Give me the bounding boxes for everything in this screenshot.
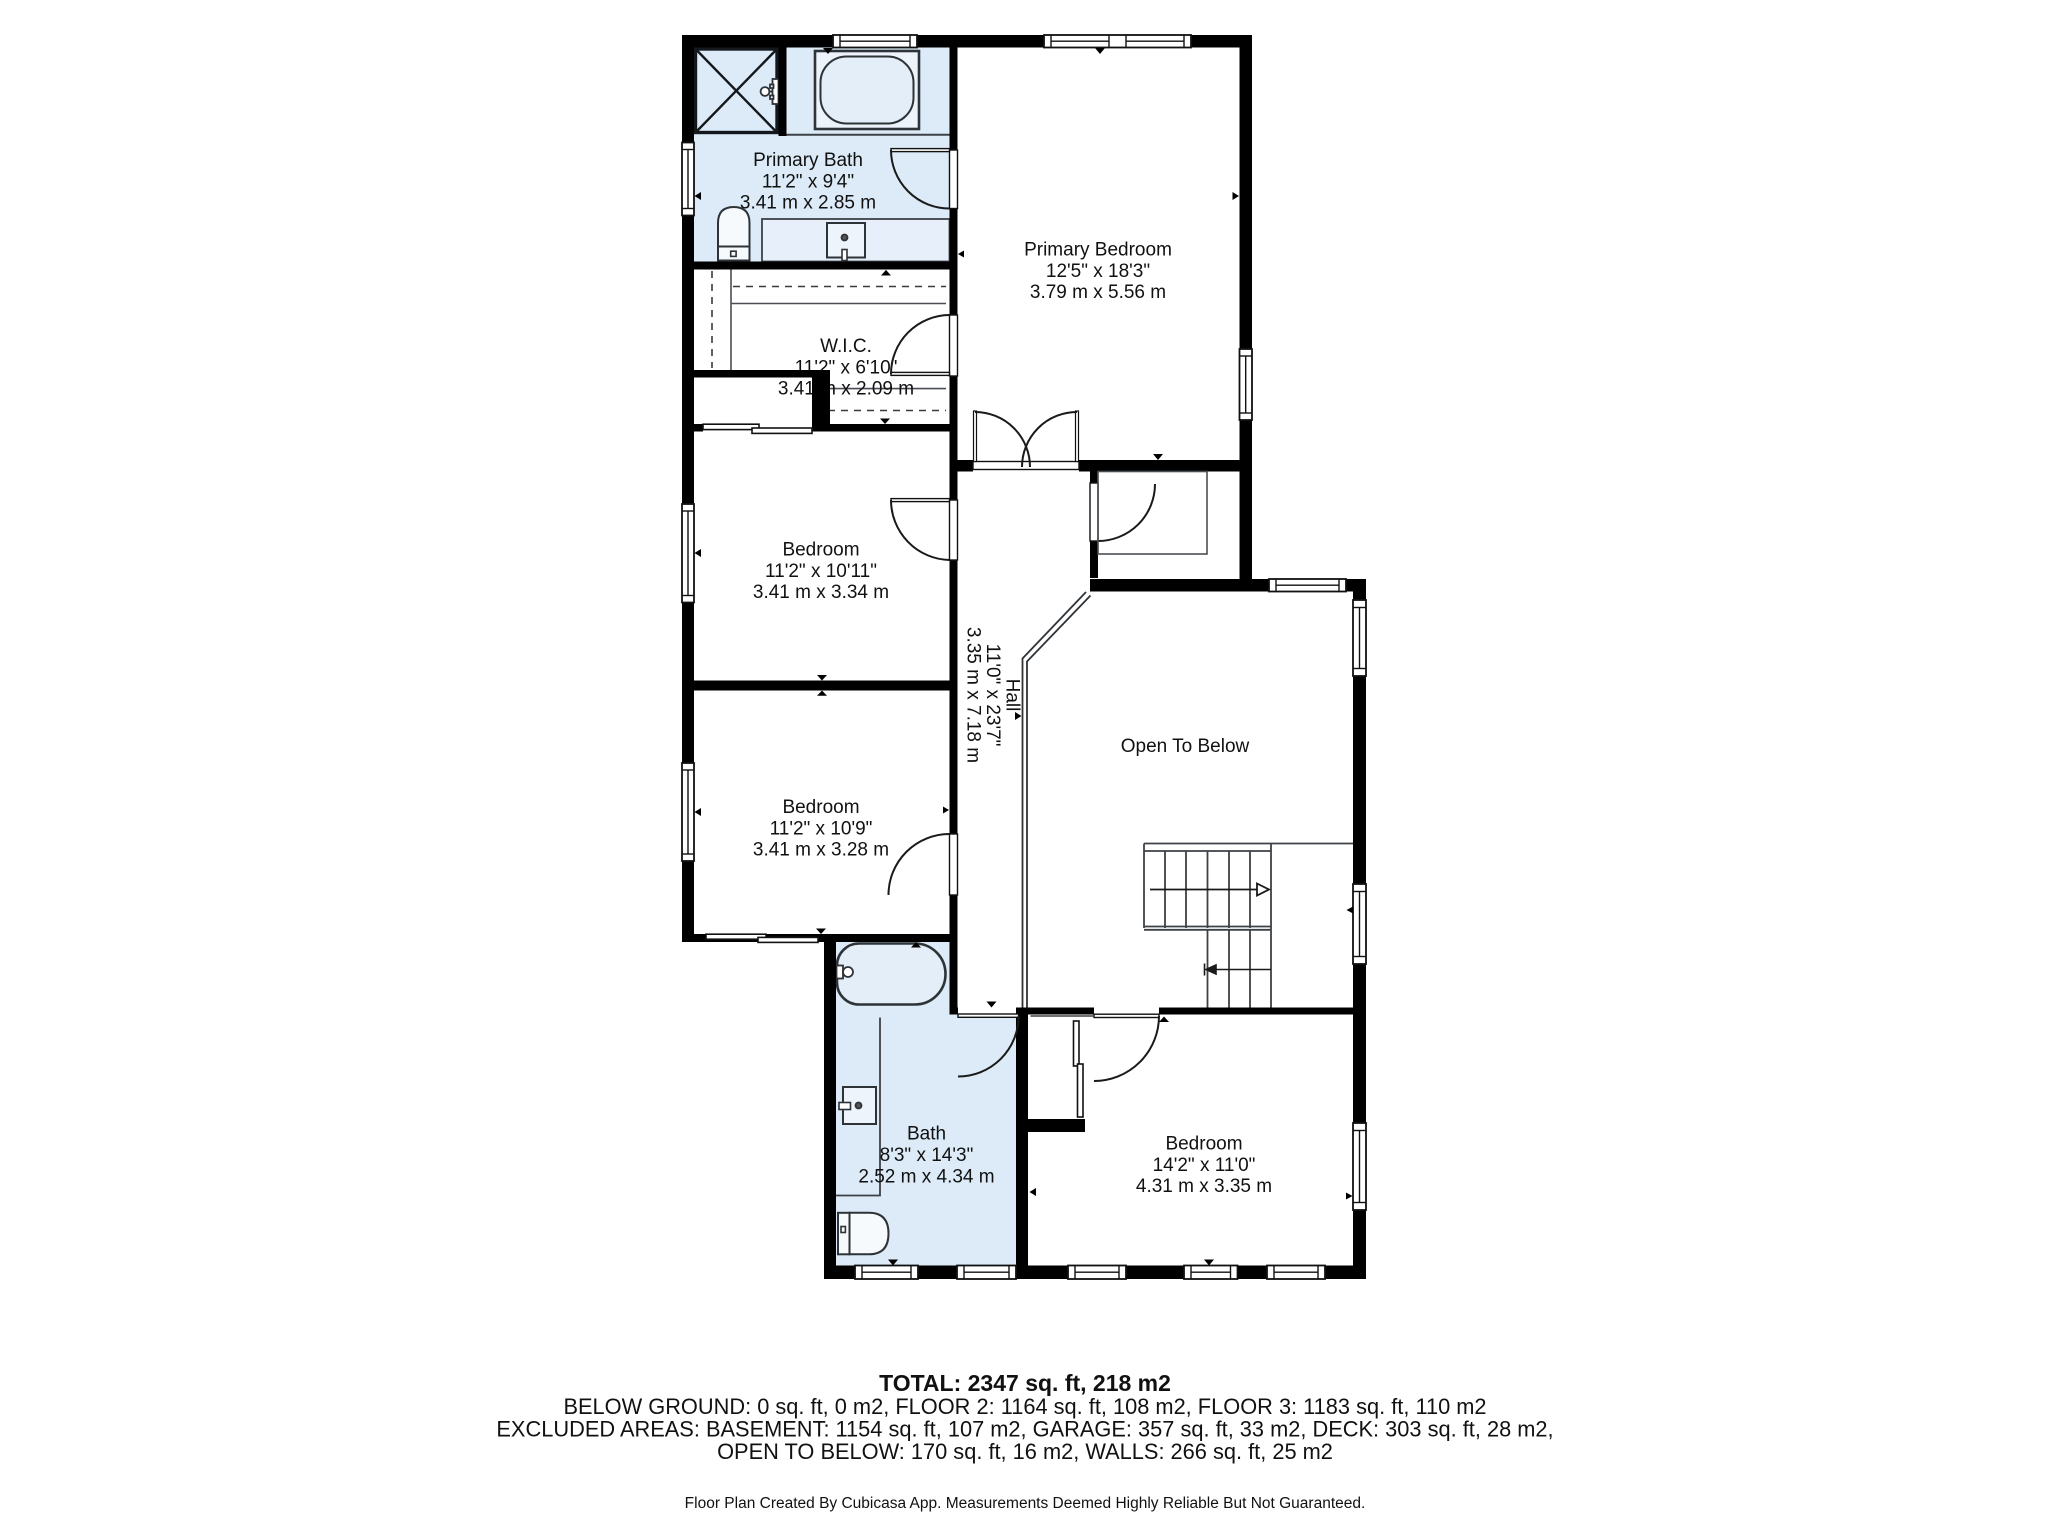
svg-text:OPEN TO BELOW: 170 sq. ft, 16: OPEN TO BELOW: 170 sq. ft, 16 m2, WALLS:… xyxy=(717,1439,1333,1464)
svg-text:Open To Below: Open To Below xyxy=(1121,736,1250,757)
svg-text:Hall: Hall xyxy=(1002,679,1023,712)
svg-text:14'2" x 11'0": 14'2" x 11'0" xyxy=(1153,1155,1256,1176)
svg-text:Bedroom: Bedroom xyxy=(782,540,859,561)
svg-text:W.I.C.: W.I.C. xyxy=(820,336,872,357)
svg-text:3.35 m x 7.18 m: 3.35 m x 7.18 m xyxy=(963,627,984,763)
svg-text:3.41 m x 2.09 m: 3.41 m x 2.09 m xyxy=(778,379,914,400)
svg-text:3.79 m x 5.56 m: 3.79 m x 5.56 m xyxy=(1030,282,1166,303)
svg-text:3.41 m x 2.85 m: 3.41 m x 2.85 m xyxy=(740,193,876,214)
svg-text:EXCLUDED AREAS: BASEMENT: 1154: EXCLUDED AREAS: BASEMENT: 1154 sq. ft, 1… xyxy=(496,1417,1553,1442)
svg-text:Primary Bedroom: Primary Bedroom xyxy=(1024,240,1172,261)
svg-text:TOTAL: 2347 sq. ft, 218 m2: TOTAL: 2347 sq. ft, 218 m2 xyxy=(879,1370,1171,1396)
svg-text:Bedroom: Bedroom xyxy=(1165,1134,1242,1155)
svg-text:11'2" x 9'4": 11'2" x 9'4" xyxy=(762,172,854,193)
svg-text:12'5" x 18'3": 12'5" x 18'3" xyxy=(1046,261,1150,282)
svg-text:11'0" x 23'7": 11'0" x 23'7" xyxy=(982,644,1003,747)
svg-text:Bath: Bath xyxy=(907,1124,946,1145)
svg-text:BELOW GROUND: 0 sq. ft, 0 m2,: BELOW GROUND: 0 sq. ft, 0 m2, FLOOR 2: 1… xyxy=(563,1394,1486,1419)
svg-text:11'2" x 10'9": 11'2" x 10'9" xyxy=(770,818,873,839)
svg-text:8'3" x 14'3": 8'3" x 14'3" xyxy=(880,1145,974,1166)
svg-text:Bedroom: Bedroom xyxy=(782,797,859,818)
svg-text:11'2" x 10'11": 11'2" x 10'11" xyxy=(765,561,877,582)
svg-text:3.41 m x 3.28 m: 3.41 m x 3.28 m xyxy=(753,840,889,861)
svg-text:2.52 m x 4.34 m: 2.52 m x 4.34 m xyxy=(858,1166,994,1187)
svg-text:Primary Bath: Primary Bath xyxy=(753,150,863,171)
svg-text:3.41 m x 3.34 m: 3.41 m x 3.34 m xyxy=(753,582,889,603)
svg-text:Floor Plan Created By Cubicasa: Floor Plan Created By Cubicasa App. Meas… xyxy=(685,1495,1366,1512)
svg-text:4.31 m x 3.35 m: 4.31 m x 3.35 m xyxy=(1136,1176,1272,1197)
